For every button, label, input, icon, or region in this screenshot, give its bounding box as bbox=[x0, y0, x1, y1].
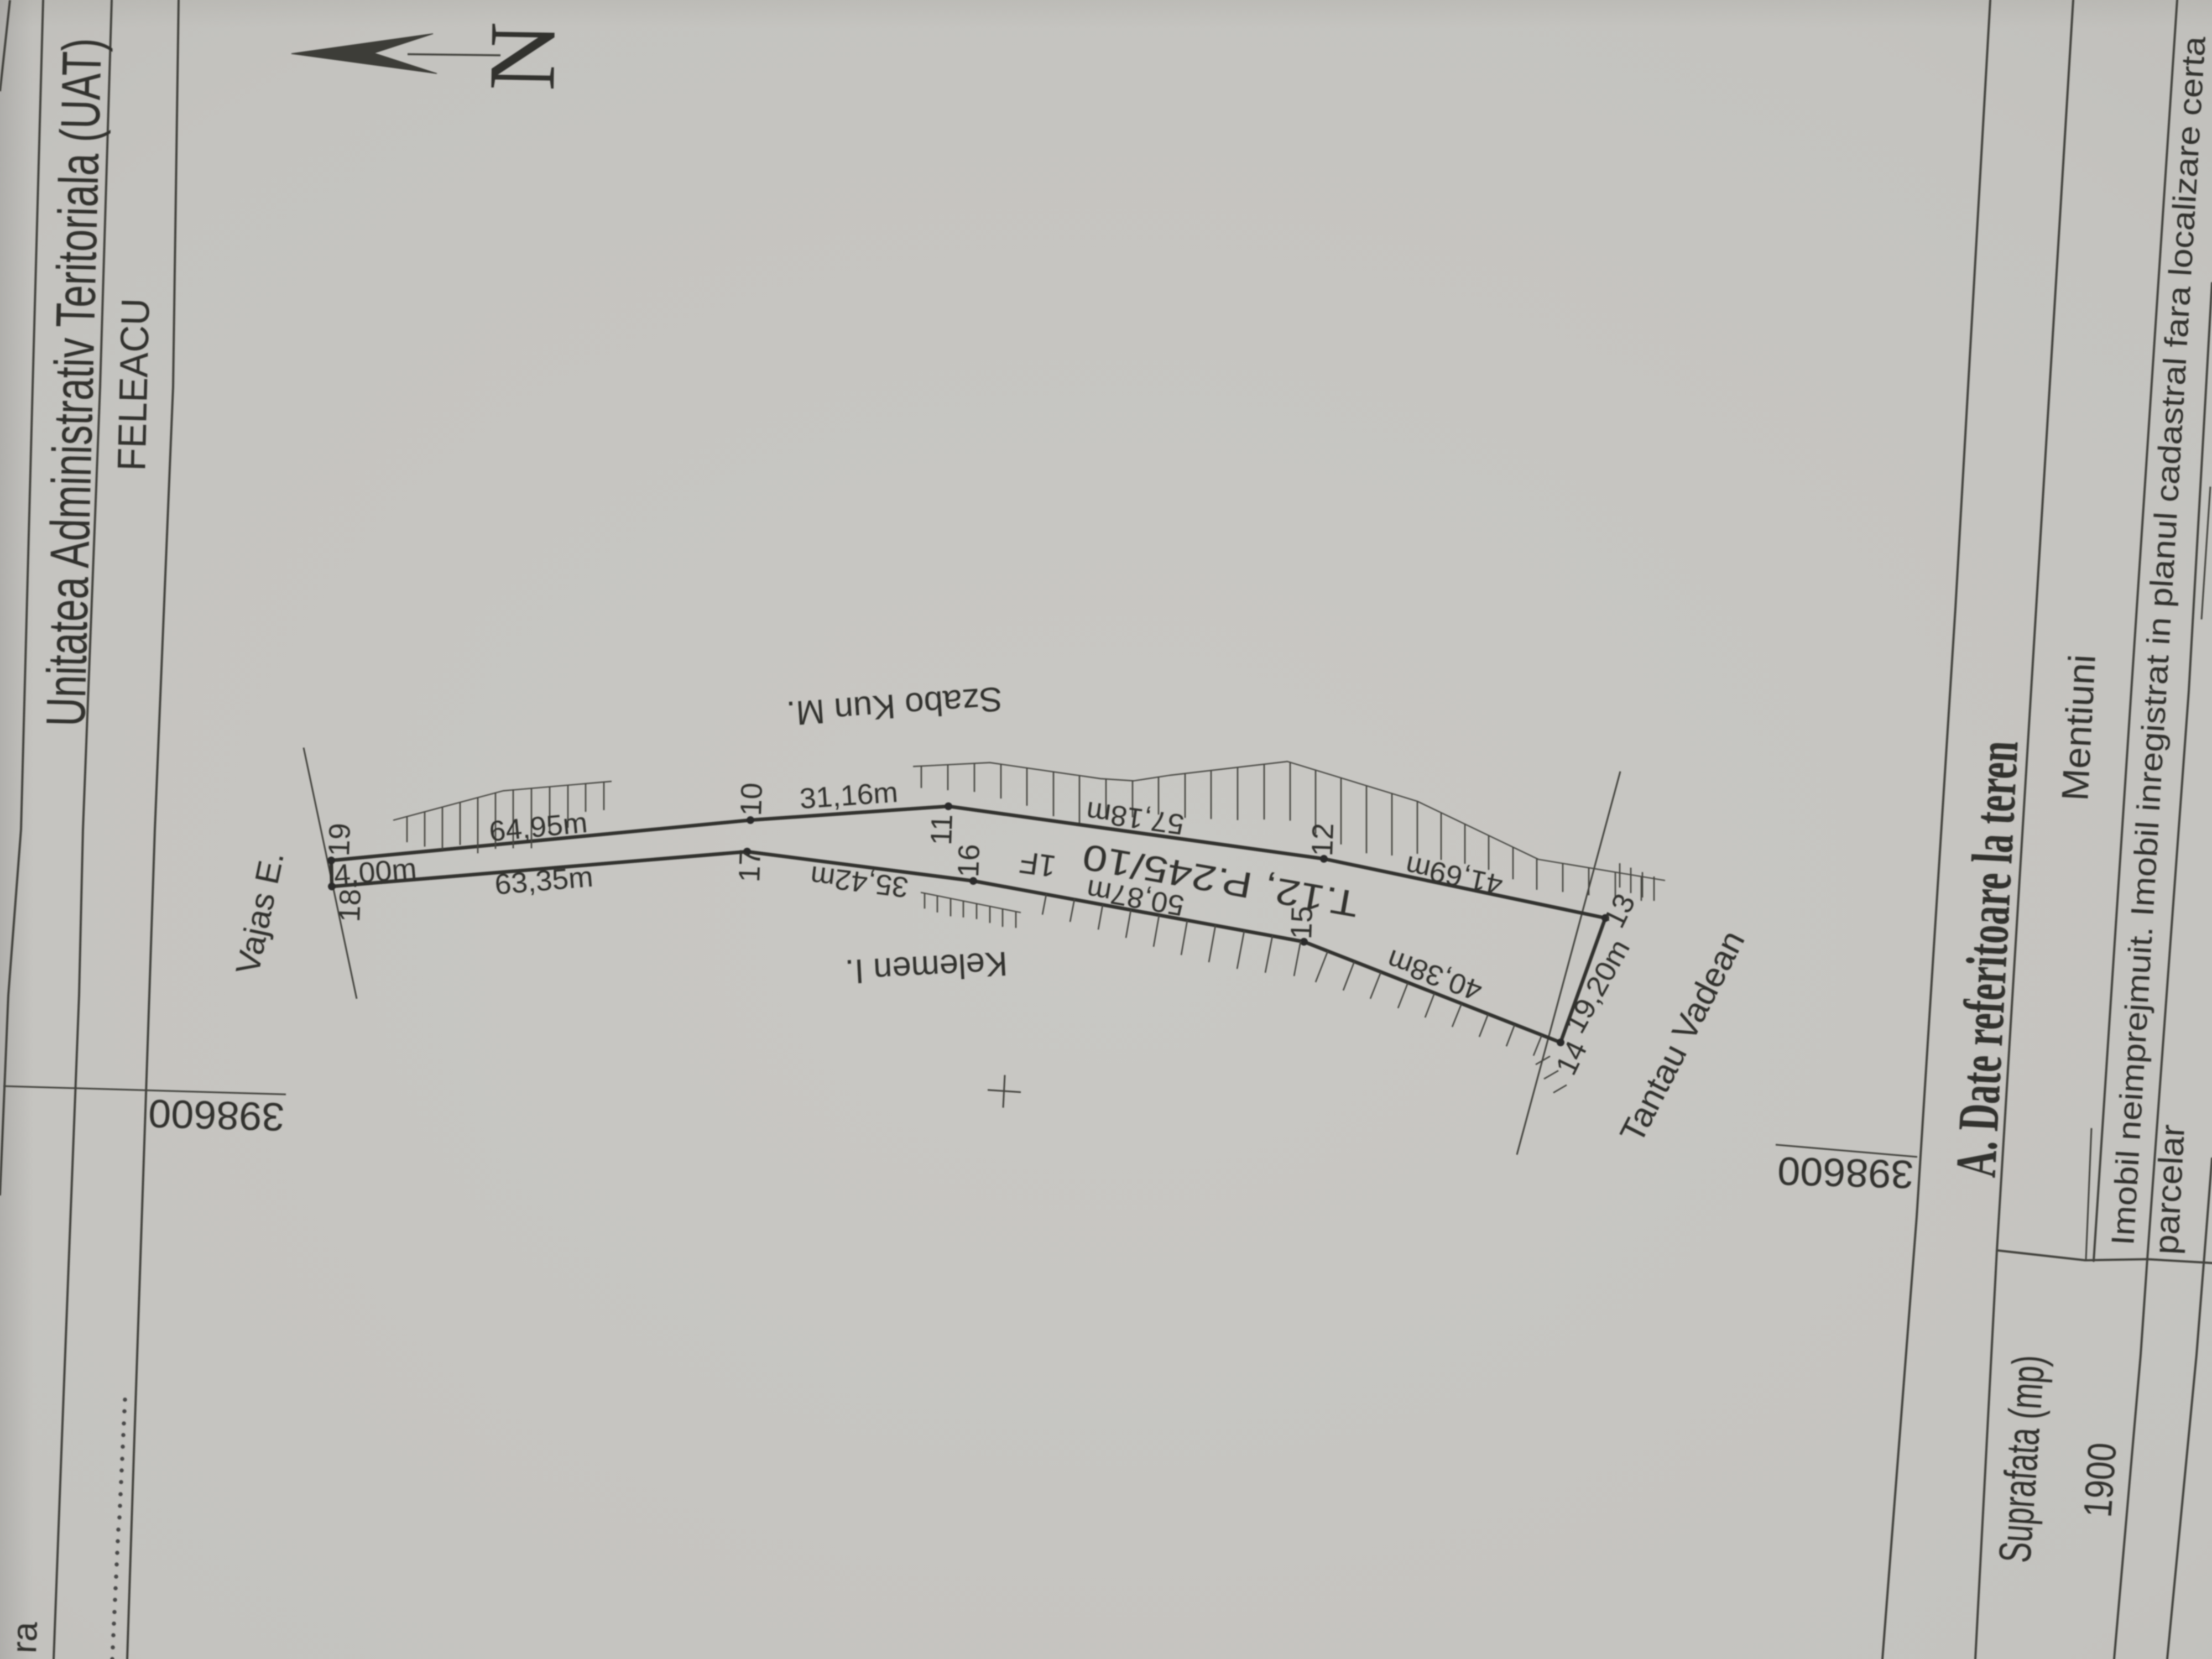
svg-text:10: 10 bbox=[734, 782, 769, 816]
svg-text:1F: 1F bbox=[1018, 845, 1058, 884]
svg-text:11: 11 bbox=[925, 813, 959, 846]
svg-text:1900: 1900 bbox=[2075, 1441, 2125, 1519]
svg-text:31,16m: 31,16m bbox=[799, 776, 899, 815]
svg-text:parcelar: parcelar bbox=[2147, 1124, 2192, 1255]
svg-text:398600: 398600 bbox=[1777, 1149, 1914, 1197]
svg-text:12: 12 bbox=[1306, 822, 1340, 857]
svg-text:Mentiuni: Mentiuni bbox=[2054, 653, 2104, 802]
svg-text:N: N bbox=[469, 21, 576, 92]
svg-text:15: 15 bbox=[1285, 905, 1319, 940]
svg-text:16: 16 bbox=[952, 843, 986, 878]
svg-text:398600: 398600 bbox=[148, 1091, 285, 1139]
svg-text:19: 19 bbox=[322, 822, 357, 857]
svg-text:ra: ra bbox=[4, 1621, 45, 1654]
svg-text:17: 17 bbox=[733, 848, 767, 883]
svg-text:FELEACU: FELEACU bbox=[109, 298, 158, 471]
svg-text:18: 18 bbox=[333, 888, 367, 922]
